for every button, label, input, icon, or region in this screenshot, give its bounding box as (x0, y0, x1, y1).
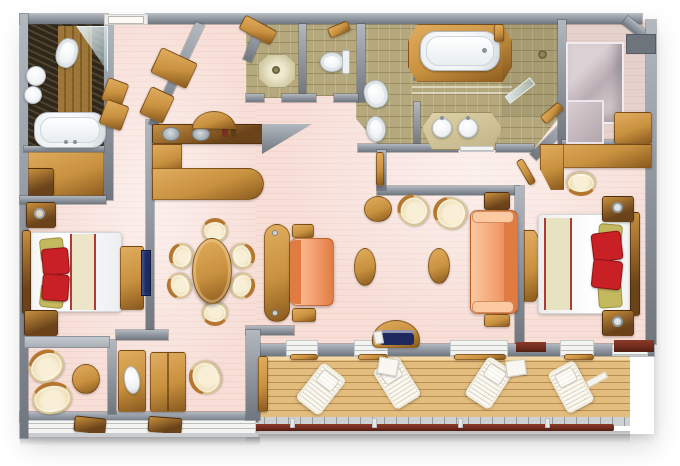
table-lamp (612, 202, 623, 213)
door-threshold (73, 415, 106, 434)
wall-cap (516, 342, 546, 352)
wall-duct (626, 34, 656, 54)
headboard (630, 212, 640, 316)
wall-segment (246, 94, 264, 102)
wall-tv (141, 250, 151, 296)
wall-segment (646, 20, 656, 344)
loveseat-back (290, 240, 301, 304)
side-table (292, 224, 314, 238)
round-side-table (72, 364, 100, 394)
entry-door (108, 16, 144, 24)
bench-cushion (380, 330, 414, 345)
bathtub-basin (40, 117, 100, 143)
floor-plan-scene (0, 0, 680, 466)
privacy-screen (258, 356, 268, 412)
bar-basin (192, 127, 210, 141)
table-lamp (34, 208, 45, 219)
faucet (64, 140, 68, 144)
faucet (73, 140, 77, 144)
vanity-stool (566, 172, 596, 196)
pillow-red (590, 230, 623, 262)
faucet (482, 48, 487, 53)
railing-post (290, 418, 295, 428)
sofa-arm (472, 301, 514, 313)
console-fitting (272, 230, 278, 236)
side-table (484, 314, 510, 327)
sink (26, 66, 46, 86)
bathroom-threshold (460, 146, 494, 152)
sink (24, 86, 42, 104)
wall-segment (282, 94, 316, 102)
sofa-back (504, 214, 517, 310)
dining-table (192, 238, 232, 304)
pillow-red (41, 247, 70, 276)
side-table (292, 308, 316, 322)
duvet-band (544, 218, 572, 310)
window-wall-shadow (20, 437, 260, 446)
deck-sill (564, 354, 594, 360)
vanity-sink (432, 118, 452, 138)
shower-trim (494, 24, 504, 42)
deck-sill (290, 354, 318, 360)
tub-steps (412, 82, 512, 94)
wall-segment (496, 144, 534, 152)
faucet (466, 116, 470, 120)
oval-coffee-table (354, 248, 376, 286)
dining-chair (202, 302, 228, 326)
closet-dresser (614, 112, 652, 144)
sofa-arm (472, 211, 514, 223)
deck-side-table (377, 356, 400, 376)
veranda-shadow (246, 431, 630, 443)
mirrored-wardrobe-return (566, 100, 604, 144)
dresser (24, 310, 58, 336)
headboard (22, 230, 31, 314)
wall-segment (116, 330, 168, 340)
wall-console-table (484, 192, 510, 210)
door-threshold (147, 416, 182, 434)
wall-segment (334, 94, 358, 102)
toilet (320, 52, 344, 72)
wall-segment (414, 102, 420, 146)
duvet-band (70, 234, 96, 310)
wall-segment (20, 14, 108, 24)
deck-side-table (505, 359, 527, 378)
wall-segment (146, 14, 642, 24)
deck-sill (454, 354, 506, 360)
pillow-red (41, 273, 70, 302)
table-lamp (612, 316, 623, 327)
cabinet-divider (167, 353, 169, 411)
curved-console (264, 224, 290, 322)
vanity-sink (458, 118, 478, 138)
wall-segment (108, 340, 116, 414)
shower-drain (538, 50, 547, 59)
bar-bottle (231, 128, 236, 137)
wall-cap (614, 340, 654, 352)
wall-ledge (24, 336, 110, 348)
closet-drawer-stack (26, 168, 54, 196)
bar-bottle (222, 128, 228, 137)
bar-basin (162, 127, 180, 141)
veranda-railing (246, 424, 614, 431)
railing-post (458, 418, 463, 428)
railing-post (545, 418, 550, 428)
oval-coffee-table (428, 248, 450, 284)
wall-segment (299, 24, 306, 96)
railing-post (372, 418, 377, 428)
console-fitting (272, 310, 278, 316)
door-jamb (376, 152, 384, 186)
shower-drain (272, 66, 280, 74)
l-cabinet-horizontal (152, 168, 264, 200)
toilet-tank (342, 50, 350, 74)
faucet (440, 116, 444, 120)
pillow-red (591, 259, 624, 291)
round-table (364, 196, 392, 222)
wall-segment (558, 20, 566, 146)
